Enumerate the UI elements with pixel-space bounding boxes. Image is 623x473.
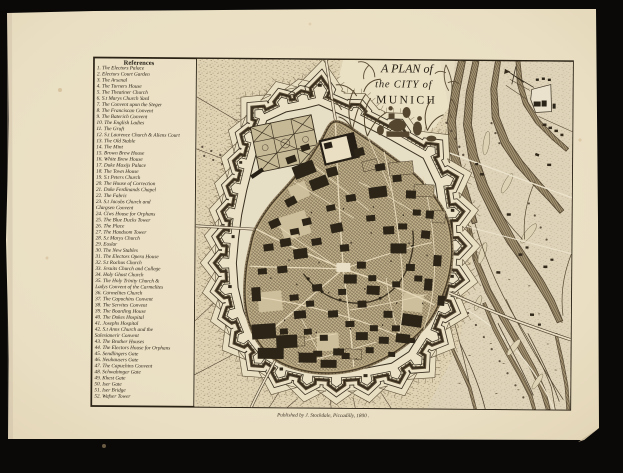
svg-text:52. Wafser Tower: 52. Wafser Tower: [94, 393, 131, 400]
svg-text:A PLAN of: A PLAN of: [380, 61, 435, 75]
svg-text:11. The Gruft: 11. The Gruft: [96, 125, 124, 132]
svg-text:the CITY of: the CITY of: [375, 79, 434, 90]
svg-text:14. The Mint: 14. The Mint: [96, 143, 123, 150]
svg-text:Published by J. Stockdale, Pic: Published by J. Stockdale, Piccadilly, 1…: [276, 412, 369, 419]
